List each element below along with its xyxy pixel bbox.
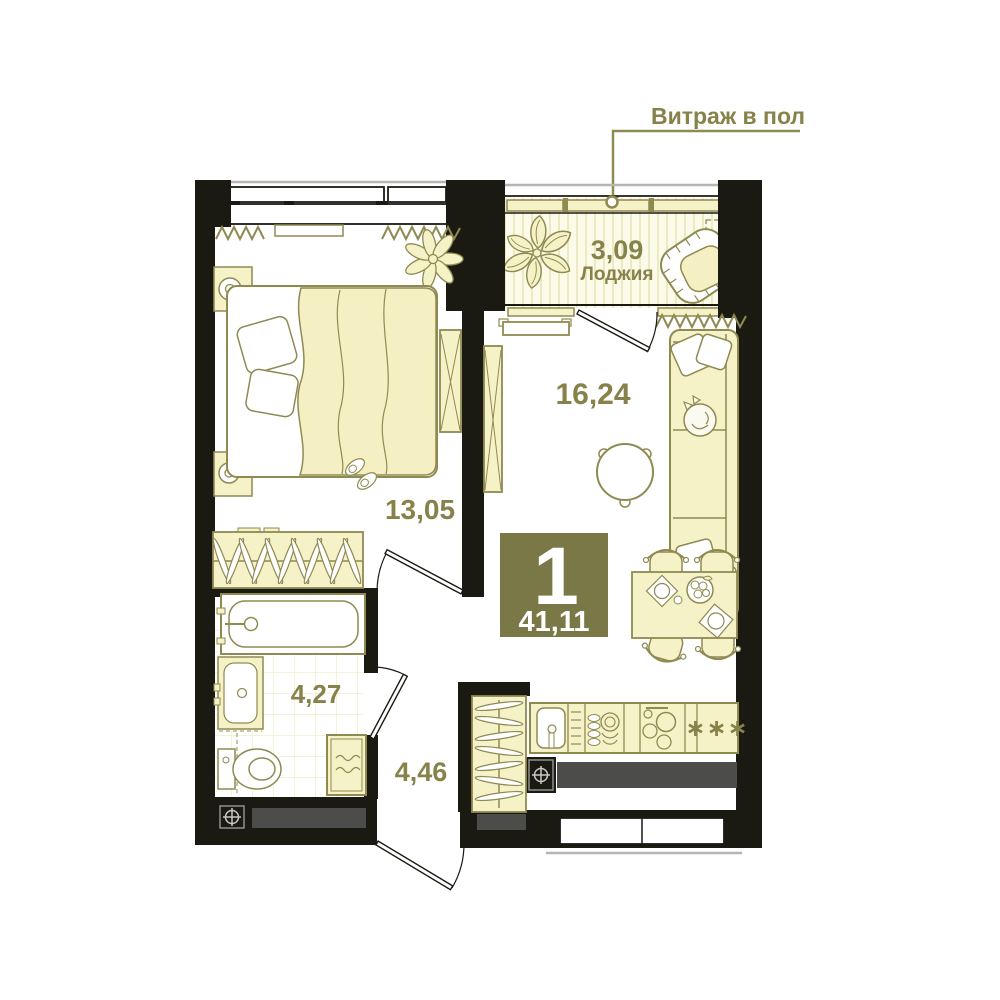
loggia-name-label: Лоджия [581, 264, 654, 285]
coffee-table [597, 444, 653, 507]
room-living: 16,24 [484, 315, 746, 667]
window-sill [275, 225, 343, 236]
balcony-door [577, 310, 657, 351]
kitchen-counter: ∗∗∗ [530, 703, 749, 753]
badge-total-area: 41,11 [519, 606, 590, 638]
closet [440, 330, 461, 432]
freezer-mark: ∗∗∗ [685, 715, 748, 742]
floor-plan: Витраж в пол [0, 0, 1000, 1000]
bench [499, 319, 571, 335]
room-bathroom: 4,27 [214, 594, 366, 797]
bathroom-area-label: 4,27 [291, 679, 342, 709]
sink [214, 657, 263, 729]
curtain-icon [216, 227, 264, 239]
blanket [298, 288, 436, 475]
pillow [245, 368, 300, 418]
hallway-area-label: 4,46 [395, 757, 448, 787]
bathtub [217, 594, 365, 654]
kitchen-sink [537, 708, 565, 748]
glazing-marker [607, 197, 618, 208]
living-area-label: 16,24 [555, 378, 630, 411]
callout-label: Витраж в пол [651, 103, 805, 129]
floor-plan-page: Витраж в пол [0, 0, 1000, 1000]
washing-machine [327, 735, 366, 795]
entrance-door [376, 841, 464, 890]
bedroom-area-label: 13,05 [385, 494, 455, 525]
loggia-glazing [507, 198, 731, 212]
cup [674, 596, 682, 604]
toilet [218, 749, 281, 789]
fruit-bowl [687, 576, 713, 603]
bedroom-window [222, 182, 452, 224]
hall-wardrobe-rack [472, 696, 526, 812]
type-badge: 1 41,11 [500, 531, 608, 638]
room-bedroom: 13,05 [211, 225, 463, 588]
curtain-icon [656, 315, 746, 327]
glazing-callout: Витраж в пол [607, 103, 805, 208]
closet [484, 346, 502, 492]
bed [227, 286, 437, 477]
bedroom-door [377, 550, 463, 594]
loggia-area-label: 3,09 [591, 235, 644, 265]
wardrobe-rack [211, 528, 363, 588]
bathroom-door [370, 667, 407, 739]
room-loggia: 3,09 Лоджия [500, 185, 744, 310]
kitchen-apron [557, 762, 737, 788]
